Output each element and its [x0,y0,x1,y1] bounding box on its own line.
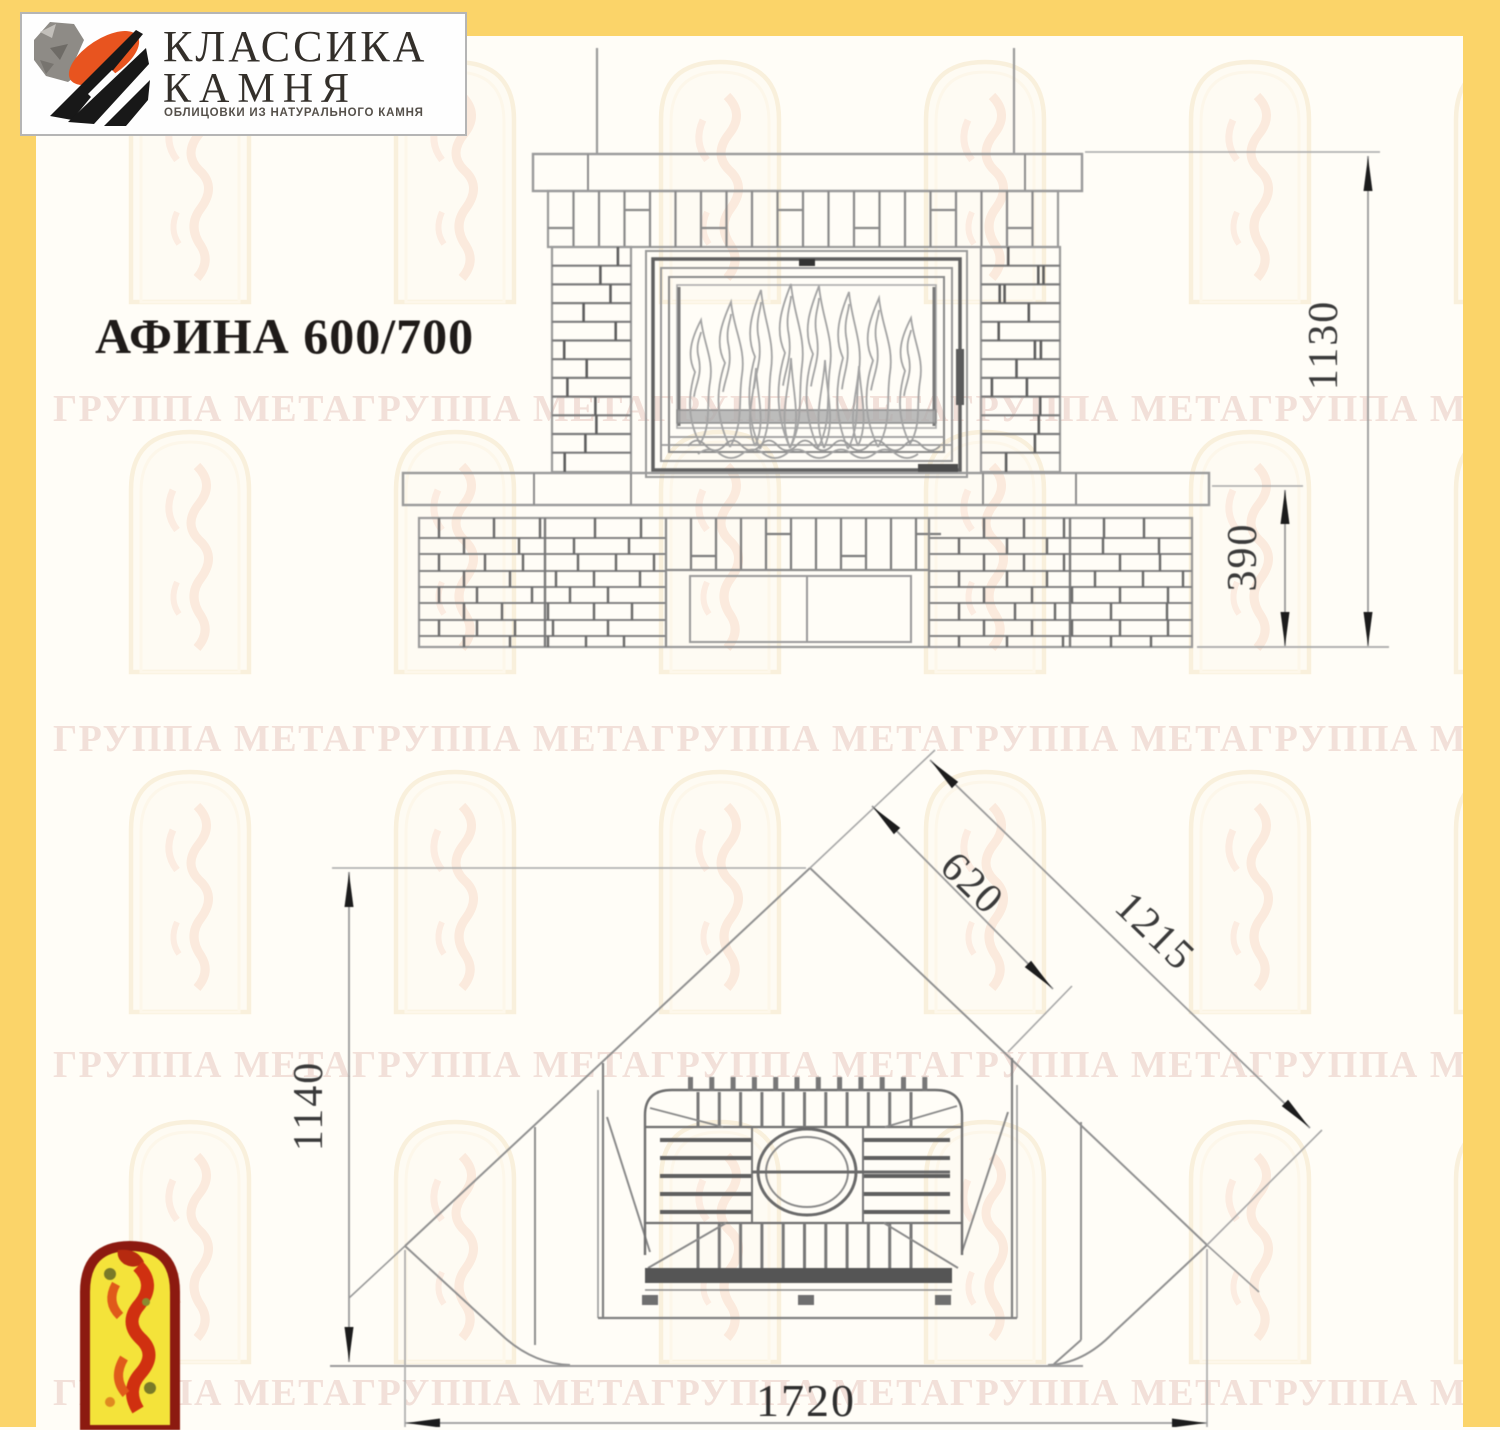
svg-text:1720: 1720 [756,1375,856,1426]
svg-text:1215: 1215 [1106,883,1204,980]
svg-text:390: 390 [1220,523,1266,592]
svg-text:620: 620 [931,843,1013,924]
svg-text:1130: 1130 [1301,300,1347,390]
svg-text:1140: 1140 [286,1061,332,1151]
